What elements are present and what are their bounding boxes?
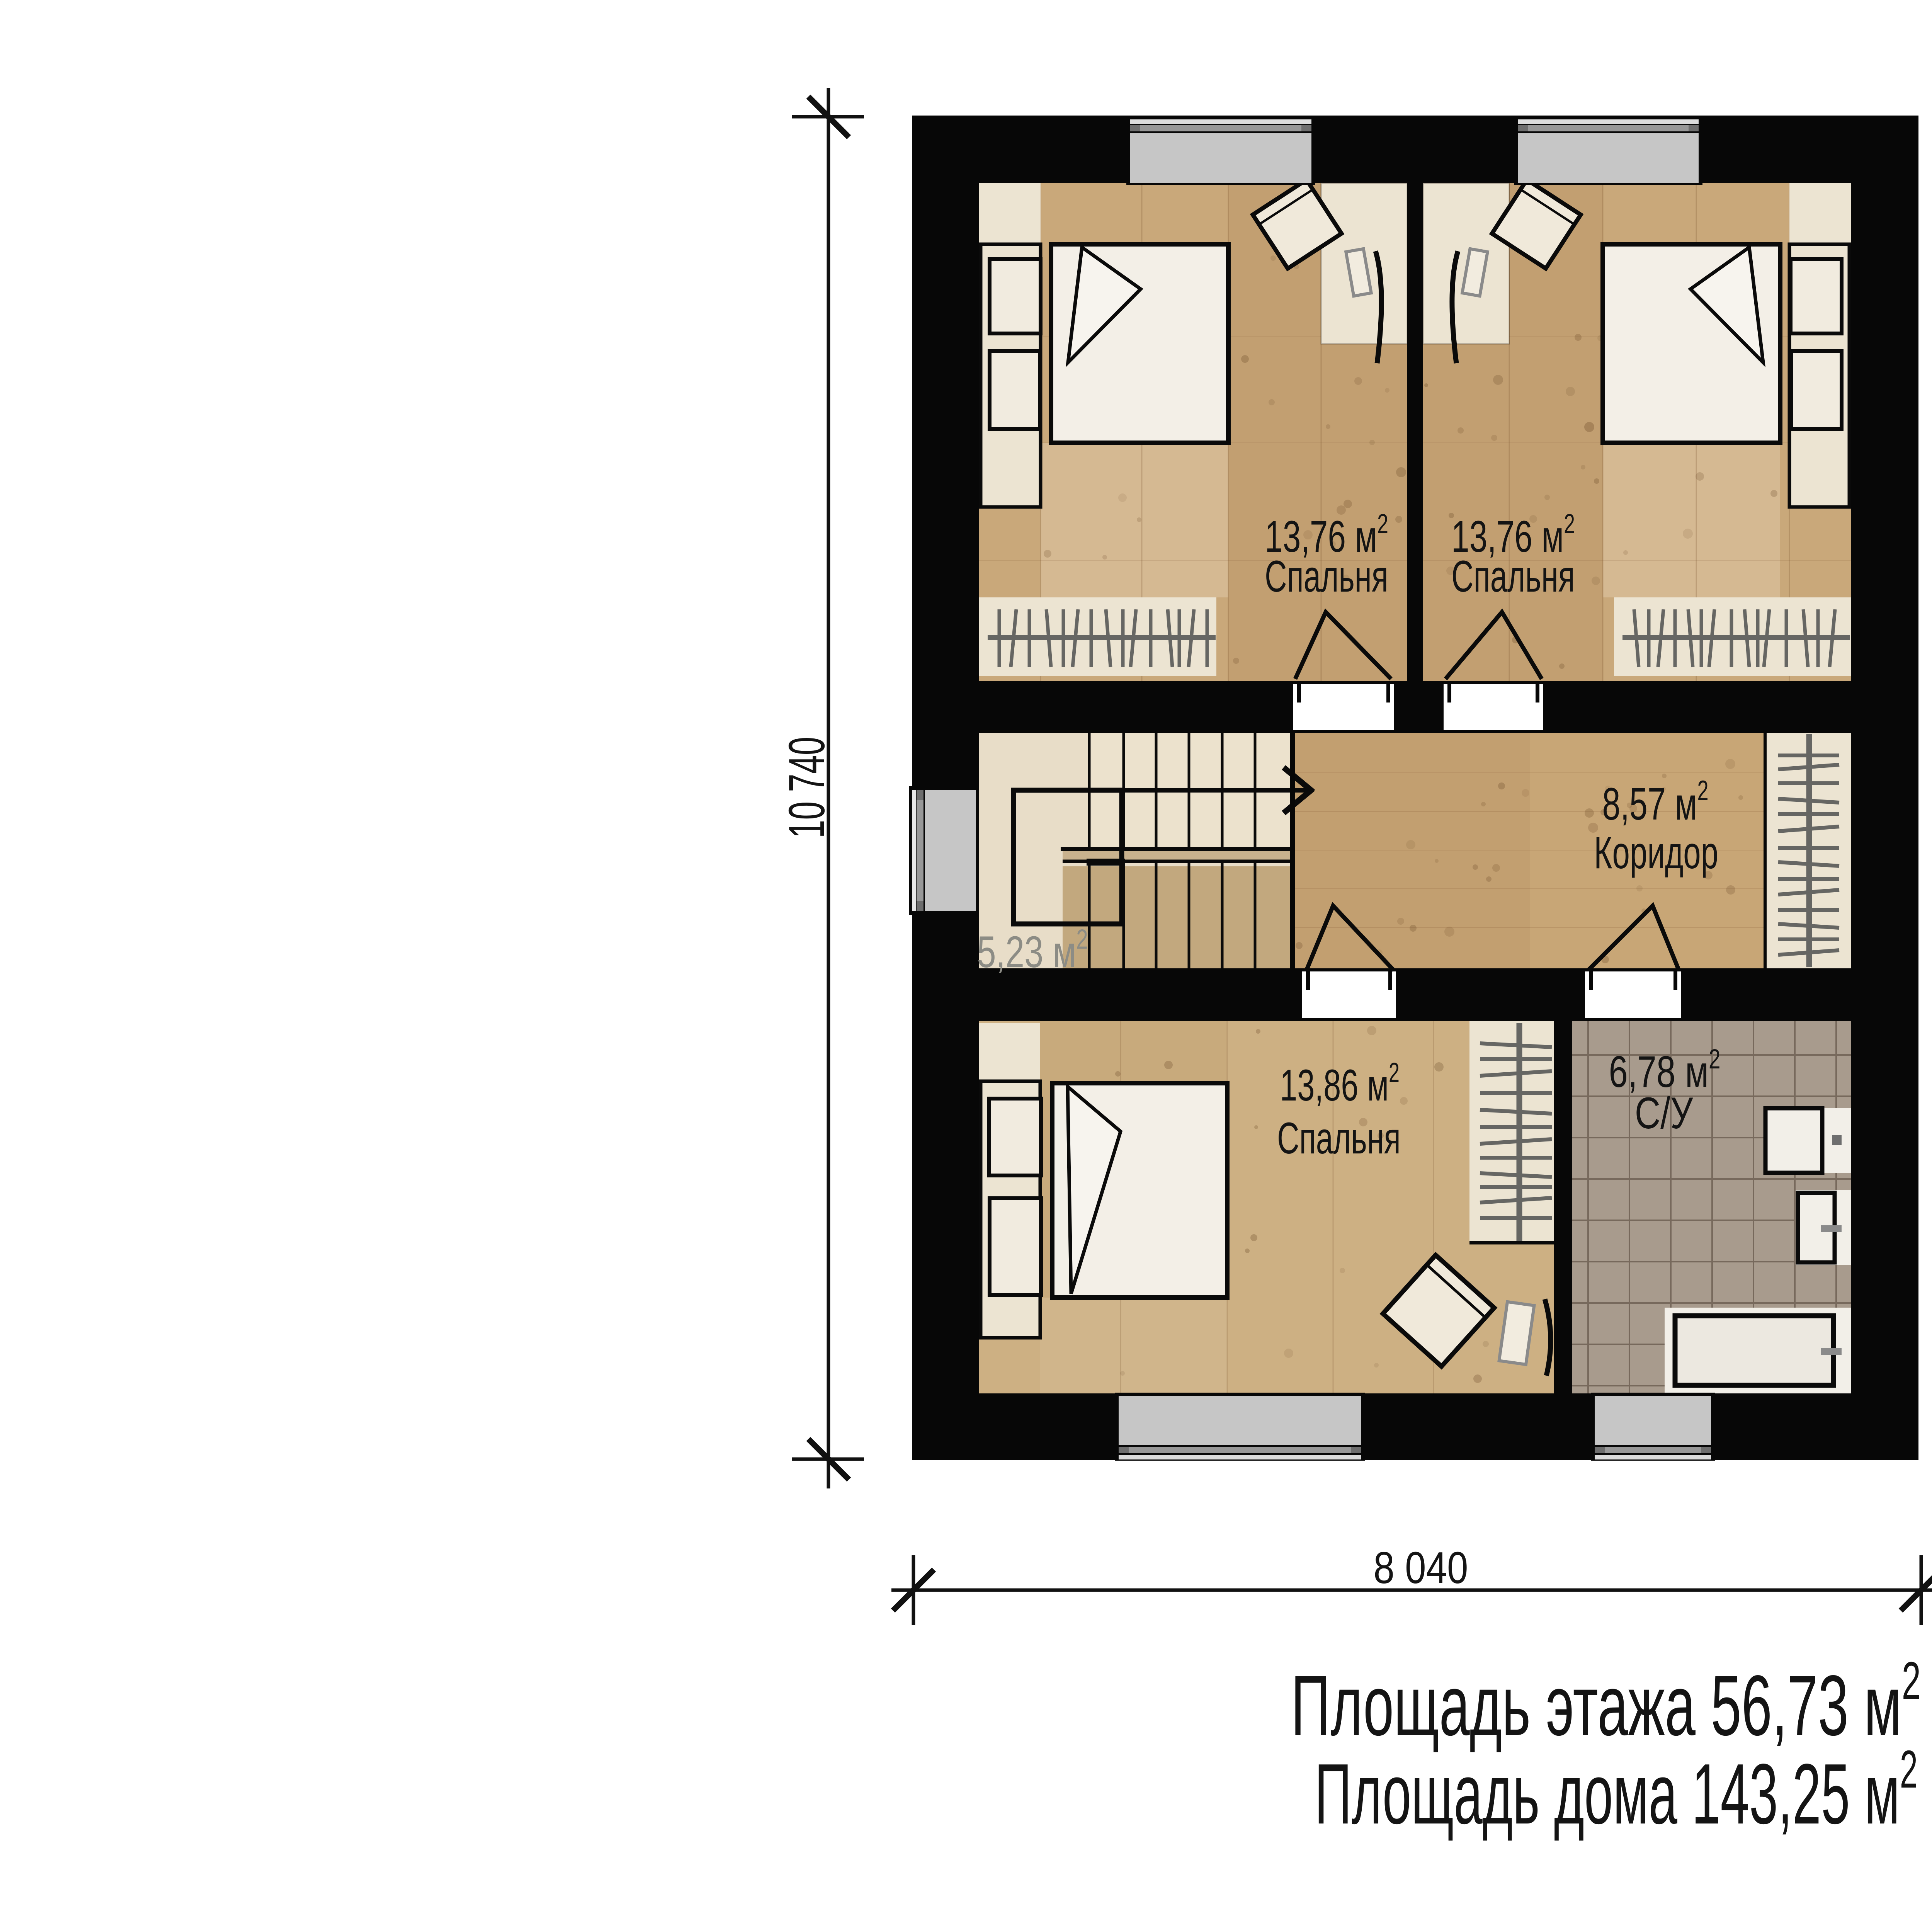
svg-text:Площадь дома 143,25 м2: Площадь дома 143,25 м2 xyxy=(1315,1740,1918,1842)
svg-text:5,23 м2: 5,23 м2 xyxy=(977,924,1088,977)
svg-text:13,86 м2: 13,86 м2 xyxy=(1280,1057,1400,1110)
svg-text:8,57 м2: 8,57 м2 xyxy=(1602,776,1708,830)
svg-text:Спальня: Спальня xyxy=(1265,551,1388,601)
svg-text:Коридор: Коридор xyxy=(1594,827,1718,878)
svg-text:Площадь этажа 56,73 м2: Площадь этажа 56,73 м2 xyxy=(1291,1651,1921,1754)
svg-text:10 740: 10 740 xyxy=(778,737,835,839)
svg-text:Спальня: Спальня xyxy=(1277,1113,1401,1163)
svg-text:8 040: 8 040 xyxy=(1374,1543,1468,1593)
svg-text:Спальня: Спальня xyxy=(1451,551,1575,601)
svg-text:С/У: С/У xyxy=(1635,1089,1693,1138)
